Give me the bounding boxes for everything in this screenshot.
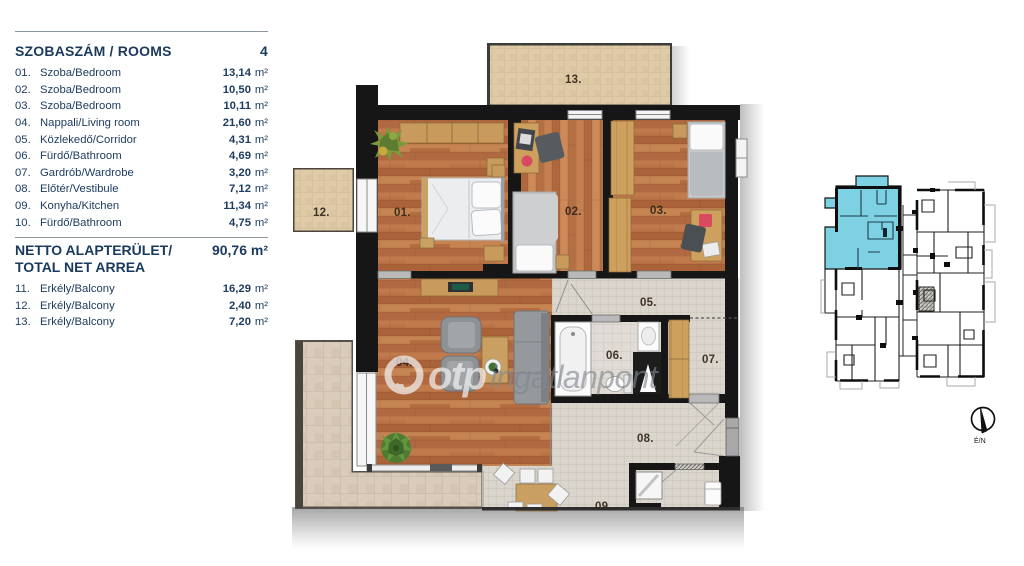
- svg-text:02.: 02.: [565, 206, 582, 218]
- svg-text:otp: otp: [428, 354, 487, 398]
- svg-text:03.: 03.: [650, 205, 667, 217]
- svg-text:13.: 13.: [565, 74, 582, 86]
- svg-text:ingatlanpont: ingatlanpont: [490, 359, 659, 395]
- svg-text:É/N: É/N: [974, 436, 986, 445]
- svg-text:09.: 09.: [595, 501, 612, 513]
- svg-text:12.: 12.: [313, 207, 330, 219]
- svg-text:07.: 07.: [702, 354, 719, 366]
- svg-text:08.: 08.: [637, 433, 654, 445]
- svg-text:01.: 01.: [394, 207, 411, 219]
- svg-text:05.: 05.: [640, 297, 657, 309]
